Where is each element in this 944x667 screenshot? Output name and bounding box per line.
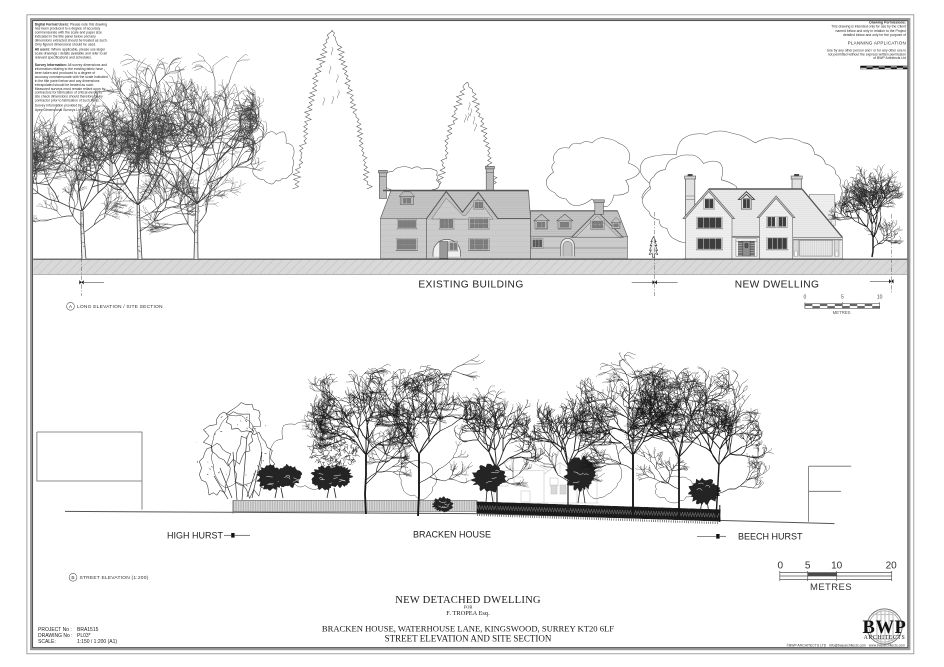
svg-text:Only figured dimensions should: Only figured dimensions should be used.: [35, 42, 96, 46]
svg-text:NEW DWELLING: NEW DWELLING: [735, 280, 820, 291]
svg-text:of BWP Architects Ltd: of BWP Architects Ltd: [873, 56, 906, 60]
svg-text:relevant specifications and sc: relevant specifications and schedules.: [35, 55, 92, 59]
svg-text:Survey Information provided by: Survey Information provided by:: [35, 103, 83, 107]
svg-text:B: B: [71, 575, 74, 581]
svg-text:METRES: METRES: [810, 582, 852, 593]
svg-text:STREET ELEVATION (1:200): STREET ELEVATION (1:200): [80, 575, 149, 581]
svg-text:0: 0: [804, 295, 807, 301]
svg-text:METRES: METRES: [833, 310, 851, 315]
svg-text:STREET ELEVATION AND SITE SECT: STREET ELEVATION AND SITE SECTION: [385, 634, 552, 644]
svg-text:5: 5: [841, 295, 844, 301]
svg-text:20: 20: [886, 561, 898, 572]
svg-text:LONG ELEVATION / SITE SECTION: LONG ELEVATION / SITE SECTION: [77, 304, 163, 310]
svg-text:BEECH HURST: BEECH HURST: [738, 532, 803, 542]
svg-text:F. TROPEA Esq.: F. TROPEA Esq.: [446, 610, 490, 617]
svg-text:EXISTING BUILDING: EXISTING BUILDING: [418, 280, 523, 291]
svg-text:HIGH HURST: HIGH HURST: [167, 531, 224, 541]
svg-text:BRACKEN HOUSE, WATERHOUSE LANE: BRACKEN HOUSE, WATERHOUSE LANE, KINGSWOO…: [322, 624, 614, 634]
svg-text:1:150 / 1:200 (A1): 1:150 / 1:200 (A1): [77, 639, 117, 645]
svg-text:SCALE:: SCALE:: [38, 639, 56, 645]
svg-text:BRACKEN HOUSE: BRACKEN HOUSE: [413, 530, 491, 540]
svg-text:Apex Dimensional Surveys Limit: Apex Dimensional Surveys Limited: [35, 108, 88, 112]
svg-text:0: 0: [778, 561, 784, 572]
svg-text:5: 5: [805, 561, 811, 572]
svg-text:10: 10: [877, 295, 883, 301]
svg-text:ARCHITECTS: ARCHITECTS: [864, 635, 906, 641]
svg-text:©BWP ARCHITECTS LTD info@bwp: ©BWP ARCHITECTS LTD info@bwparchitects.c…: [787, 643, 906, 647]
svg-text:10: 10: [831, 561, 843, 572]
svg-text:FOR: FOR: [464, 605, 473, 610]
svg-text:detailed below and only for th: detailed below and only for the purpose …: [843, 33, 906, 37]
svg-text:PLANNING APPLICATION: PLANNING APPLICATION: [848, 41, 906, 46]
